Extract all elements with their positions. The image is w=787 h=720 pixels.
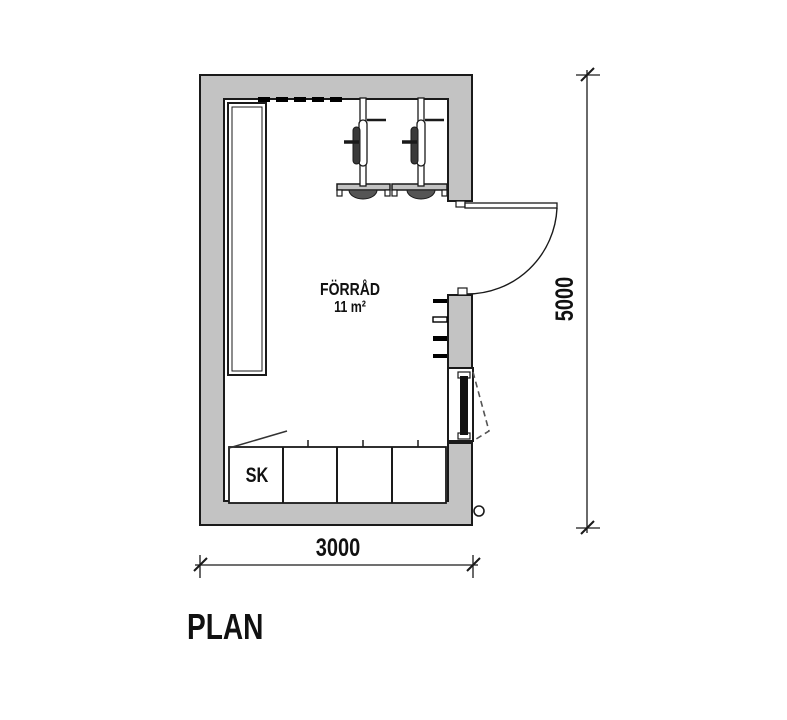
window-opening-dashes <box>473 372 489 441</box>
page-title: PLAN <box>187 607 263 647</box>
room-name: FÖRRÅD <box>320 278 380 299</box>
shelf-icon <box>228 103 266 375</box>
door-jamb <box>456 201 465 207</box>
wall-socket-ticks-icon <box>433 299 447 358</box>
door-swing-icon <box>456 201 557 295</box>
door-jamb <box>458 288 467 295</box>
room-label: FÖRRÅD 11 m² <box>320 278 380 316</box>
door-leaf <box>465 203 557 208</box>
window-icon <box>448 368 489 441</box>
dimension-width: 3000 <box>194 534 480 578</box>
dimension-width-value: 3000 <box>316 534 360 562</box>
drain-circle-icon <box>474 506 484 516</box>
room-area: 11 m² <box>334 299 366 317</box>
bike-rack-icon <box>392 98 447 199</box>
cabinet-row-icon: SK <box>229 431 446 503</box>
door-arc <box>467 208 557 294</box>
bike-rack-icon <box>337 98 390 199</box>
wall-pier <box>448 295 472 368</box>
dimension-height-value: 5000 <box>551 277 579 321</box>
cabinet-door-swing-line <box>229 431 287 448</box>
dimension-height: 5000 <box>551 68 600 534</box>
floor-plan-drawing: SK FÖRRÅD 11 m² 5000 3000 PLAN <box>0 0 787 720</box>
cabinet-label: SK <box>246 463 269 486</box>
